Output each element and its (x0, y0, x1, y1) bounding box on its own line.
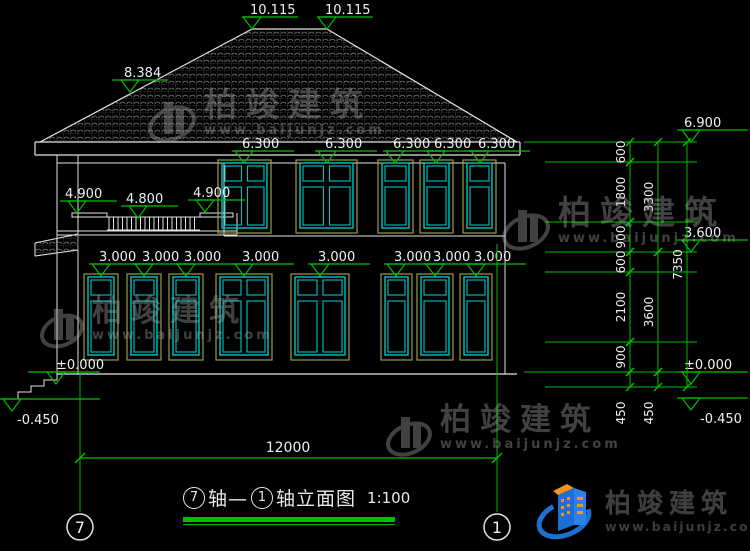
elevation-value: ±0.000 (684, 358, 732, 373)
elevation-value: 3.000 (142, 250, 179, 265)
window-pane (470, 166, 489, 181)
dimension-value: 2100 (614, 292, 628, 323)
window-pane (330, 187, 351, 225)
title-underline-line (183, 524, 395, 525)
brand-logo-name: 柏竣建筑 (605, 490, 750, 519)
mark-triangle (235, 151, 253, 163)
window (296, 160, 357, 233)
window-frame (131, 277, 157, 355)
elevation-mark: ±0.000 (677, 358, 748, 384)
elevation-value: 10.115 (250, 3, 296, 18)
elevation-value: 6.300 (325, 137, 362, 152)
dimension-value: 450 (642, 402, 656, 425)
elevation-mark: 3.000 (174, 250, 236, 276)
drawing-title-block: 7 轴— 1 轴立面图 1:100 (183, 484, 413, 525)
title-axis-bubble-7: 7 (183, 487, 205, 509)
brand-logo-icon (536, 481, 600, 543)
window-pane (223, 301, 241, 352)
window (460, 274, 492, 360)
elevation-mark: 3.000 (464, 250, 526, 276)
elevation-value: 3.000 (242, 250, 279, 265)
window-pane (467, 280, 485, 295)
window-pane (91, 301, 111, 352)
window-pane (385, 187, 406, 225)
elevation-value: 3.000 (433, 250, 470, 265)
window-pane (323, 280, 342, 295)
window-pane (385, 166, 406, 181)
elevation-mark: 3.000 (232, 250, 294, 276)
elevation-value: 4.800 (126, 192, 163, 207)
overall-dimension-value: 12000 (266, 440, 311, 456)
window-pane (176, 301, 196, 352)
elevation-mark: 4.800 (121, 192, 178, 218)
mark-triangle (318, 151, 336, 163)
dimension-value: 600 (614, 251, 628, 274)
window (169, 274, 203, 360)
elevation-mark: 4.900 (188, 186, 245, 212)
window-pane (424, 280, 446, 295)
dimension-value: 7350 (671, 249, 685, 280)
window-pane (388, 301, 405, 352)
elevation-value: 3.000 (99, 250, 136, 265)
window-pane (424, 301, 446, 352)
elevation-value: 6.300 (434, 137, 471, 152)
window-pane (225, 166, 242, 181)
dimension-value: 3600 (642, 297, 656, 328)
window-frame (220, 277, 268, 355)
mark-triangle (682, 372, 700, 384)
mark-triangle (682, 130, 700, 142)
mark-triangle (196, 200, 214, 212)
window-pane (303, 166, 324, 181)
window-pane (388, 280, 405, 295)
brand-logo-site: www.baijunjz.com (605, 519, 750, 534)
window (84, 274, 118, 360)
window-pane (470, 187, 489, 225)
mark-triangle (3, 399, 21, 411)
window-frame (300, 163, 353, 228)
mark-triangle (129, 206, 147, 218)
window-pane (247, 280, 265, 295)
title-joiner: 轴— (208, 484, 248, 511)
elevation-value: -0.450 (700, 412, 742, 427)
window-pane (134, 280, 154, 295)
elevation-value: 3.000 (318, 250, 355, 265)
elevation-value: 6.300 (242, 137, 279, 152)
window-pane (91, 280, 111, 295)
window-pane (303, 187, 324, 225)
elevation-mark: 3.000 (308, 250, 370, 276)
window-pane (330, 166, 351, 181)
axis-bubble-1-number: 1 (492, 518, 502, 537)
elevation-value: 3.000 (474, 250, 511, 265)
window-trim (420, 160, 453, 233)
window-pane (248, 187, 265, 225)
window-pane (223, 280, 241, 295)
axis-bubble-7-number: 7 (75, 518, 85, 537)
dimension-value: 1800 (614, 177, 628, 208)
elevation-mark: ±0.000 (28, 358, 104, 384)
elevation-mark: 4.900 (60, 187, 117, 213)
window (378, 160, 413, 233)
window-trim (378, 160, 413, 233)
elevation-value: 6.300 (478, 137, 515, 152)
window-frame (382, 163, 409, 228)
window (417, 274, 453, 360)
elevation-value: 3.000 (184, 250, 221, 265)
window-pane (248, 166, 265, 181)
title-name: 轴立面图 (276, 484, 356, 511)
window (381, 274, 412, 360)
window (127, 274, 161, 360)
dimension-value: 450 (614, 402, 628, 425)
elevation-mark: -0.450 (0, 399, 100, 428)
mark-triangle (318, 17, 336, 29)
elevation-value: 8.384 (124, 66, 161, 81)
window-trim (127, 274, 161, 360)
elevation-mark: 6.300 (468, 137, 530, 163)
mark-triangle (427, 151, 445, 163)
elevation-value: 3.000 (394, 250, 431, 265)
entry-steps (4, 374, 57, 399)
window-pane (298, 301, 317, 352)
mark-triangle (386, 151, 404, 163)
window-trim (417, 274, 453, 360)
window-pane (176, 280, 196, 295)
window-trim (460, 274, 492, 360)
elevation-mark: 6.900 (677, 116, 748, 142)
window-pane (323, 301, 342, 352)
mark-triangle (471, 151, 489, 163)
elevation-mark: 3.600 (677, 226, 748, 252)
window (463, 160, 496, 233)
title-scale: 1:100 (367, 489, 410, 507)
parapet-cap-right (200, 213, 233, 217)
elevation-value: 6.900 (684, 116, 721, 131)
window-frame (464, 277, 488, 355)
window-trim (216, 274, 272, 360)
mark-triangle (682, 398, 700, 410)
window (291, 274, 349, 360)
dimension-value: 900 (614, 346, 628, 369)
mark-triangle (243, 17, 261, 29)
elevation-value: 10.115 (325, 3, 371, 18)
window-frame (421, 277, 449, 355)
title-underline-bar (183, 517, 395, 522)
window-pane (247, 301, 265, 352)
window-pane (427, 187, 446, 225)
elevation-value: 3.600 (684, 226, 721, 241)
window-trim (296, 160, 357, 233)
brand-logo: 柏竣建筑 www.baijunjz.com (536, 481, 750, 543)
window-frame (424, 163, 449, 228)
mark-triangle (68, 201, 86, 213)
elevation-mark: -0.450 (677, 398, 748, 427)
window-trim (291, 274, 349, 360)
dimension-value: 3300 (642, 182, 656, 213)
window-trim (463, 160, 496, 233)
window-frame (88, 277, 114, 355)
cad-elevation-screenshot: 10.11510.1158.3846.3006.3006.3006.3006.3… (0, 0, 750, 551)
roof-tile-surface (40, 29, 517, 142)
window-pane (134, 301, 154, 352)
elevation-value: 4.900 (65, 187, 102, 202)
elevation-value: -0.450 (17, 413, 59, 428)
window (420, 160, 453, 233)
window-pane (298, 280, 317, 295)
window-trim (169, 274, 203, 360)
dimension-value: 600 (614, 141, 628, 164)
window-trim (84, 274, 118, 360)
window-frame (173, 277, 199, 355)
drawing-title: 7 轴— 1 轴立面图 1:100 (183, 484, 413, 511)
dimension-chains: 60018009006002100900450330036004507350 (524, 138, 697, 424)
window-pane (467, 301, 485, 352)
window-frame (467, 163, 492, 228)
elevation-value: ±0.000 (56, 358, 104, 373)
elevation-value: 6.300 (393, 137, 430, 152)
window-frame (295, 277, 345, 355)
title-axis-bubble-1: 1 (251, 487, 273, 509)
elevation-mark: 10.115 (242, 3, 298, 29)
elevation-drawing-svg: 10.11510.1158.3846.3006.3006.3006.3006.3… (0, 0, 750, 551)
window (216, 274, 272, 360)
dimension-value: 900 (614, 226, 628, 249)
elevation-mark: 10.115 (317, 3, 373, 29)
elevation-value: 4.900 (193, 186, 230, 201)
window-pane (427, 166, 446, 181)
